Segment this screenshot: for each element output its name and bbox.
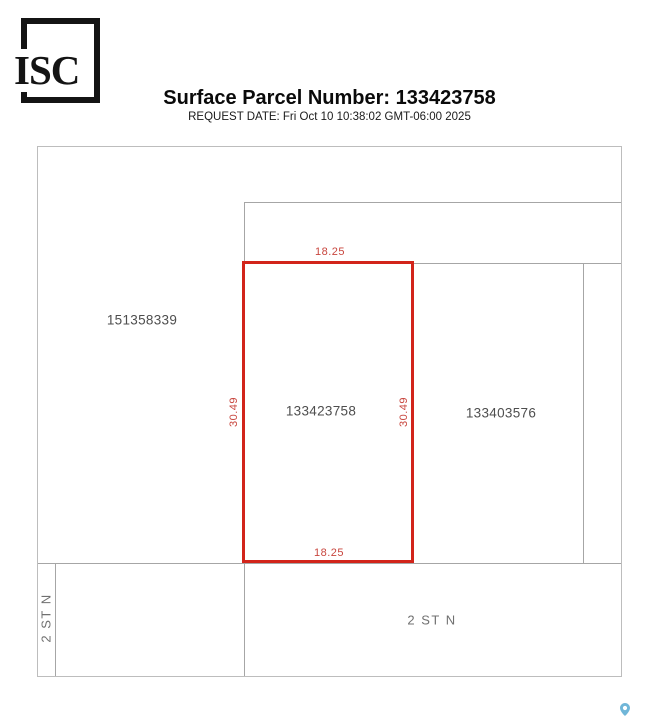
dimension-label-top: 18.25 [314,246,346,258]
parcel-label-133423758: 133423758 [286,404,356,419]
isc-logo-text: ISC [14,49,82,92]
boundary-line-upper-horizontal [244,202,621,203]
request-date: REQUEST DATE: Fri Oct 10 10:38:02 GMT-06… [0,111,659,123]
street-label-vertical: 2 ST N [39,593,54,642]
map-pin-icon [619,702,631,717]
street-lower-vertical-line [244,563,245,676]
parcel-map: 151358339 133423758 133403576 18.25 18.2… [37,146,622,677]
street-boundary-line [38,563,621,564]
dimension-label-right: 30.49 [398,396,410,428]
parcel-report-page: ISC Surface Parcel Number: 133423758 REQ… [0,0,659,720]
boundary-line-right-horizontal [414,263,621,264]
boundary-line-upper-vertical [244,202,245,262]
boundary-line-right-vertical [583,263,584,563]
street-label-horizontal: 2 ST N [407,613,456,628]
page-title: Surface Parcel Number: 133423758 [0,87,659,110]
dimension-label-left: 30.49 [228,396,240,428]
street-left-column-line [55,563,56,676]
parcel-label-133403576: 133403576 [466,406,536,421]
parcel-label-151358339: 151358339 [107,313,177,328]
dimension-label-bottom: 18.25 [313,547,345,559]
